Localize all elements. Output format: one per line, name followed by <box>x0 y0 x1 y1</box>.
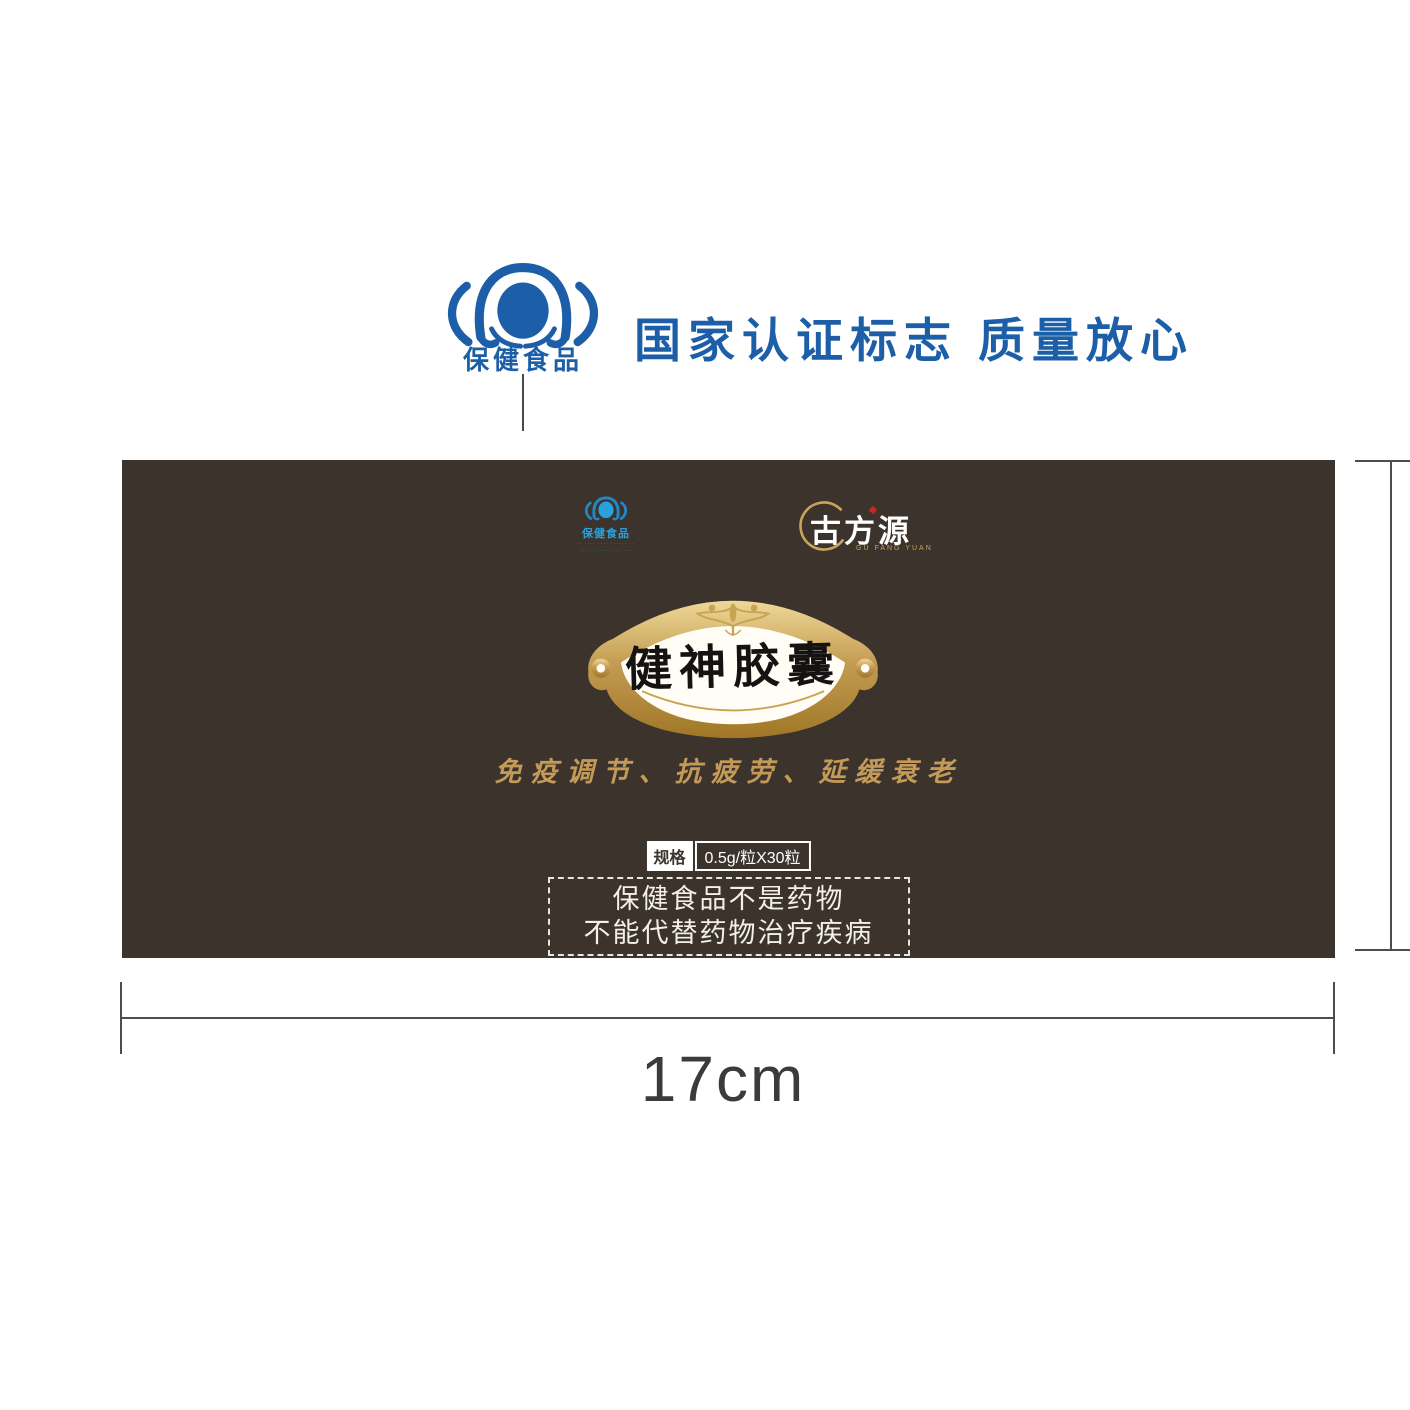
height-dimension-line <box>1390 461 1392 951</box>
logo-pointer-line <box>522 374 524 431</box>
disclaimer-box: 保健食品不是药物 不能代替药物治疗疾病 <box>548 877 910 956</box>
width-dimension-line <box>121 1017 1335 1019</box>
certification-headline: 国家认证标志 质量放心 <box>634 302 1194 371</box>
approval-fine-print-line2: ··· ··· ····· ·· ··· <box>568 548 644 555</box>
disclaimer-line2: 不能代替药物治疗疾病 <box>550 916 908 950</box>
product-tagline: 免疫调节、抗疲劳、延缓衰老 <box>495 750 963 789</box>
height-dimension-cap-top <box>1355 460 1410 462</box>
fan-scroll-emblem: 健神胶囊 <box>575 584 891 742</box>
package-blue-hat-logo: 保健食品 ·· ···· ···· ······ ·· ··· ··· ····… <box>568 494 644 555</box>
small-blue-hat-icon <box>583 494 629 522</box>
brand-romanized: GU FANG YUAN <box>856 545 933 552</box>
blue-hat-icon <box>440 256 606 352</box>
product-name: 健神胶囊 <box>574 624 892 701</box>
small-blue-hat-label: 保健食品 <box>568 525 644 541</box>
disclaimer-line1: 保健食品不是药物 <box>550 882 908 916</box>
approval-fine-print-line1: ·· ···· ···· ······ ·· <box>568 541 644 548</box>
package-front-panel: 保健食品 ·· ···· ···· ······ ·· ··· ··· ····… <box>122 460 1335 958</box>
height-dimension-cap-bottom <box>1355 949 1410 951</box>
spec-value: 0.5g/粒X30粒 <box>694 841 810 871</box>
spec-label: 规格 <box>646 841 692 871</box>
blue-hat-certification-logo: 保健食品 <box>438 256 608 372</box>
width-dimension-label: 17cm <box>598 1042 848 1116</box>
packaging-design-proof: 保健食品 国家认证标志 质量放心 保健食品 ·· ···· ···· ·····… <box>0 0 1410 1410</box>
spec-badge: 规格 0.5g/粒X30粒 <box>646 841 810 871</box>
blue-hat-label: 保健食品 <box>438 340 608 377</box>
brand-logo: 古方源 GU FANG YUAN <box>798 500 958 560</box>
